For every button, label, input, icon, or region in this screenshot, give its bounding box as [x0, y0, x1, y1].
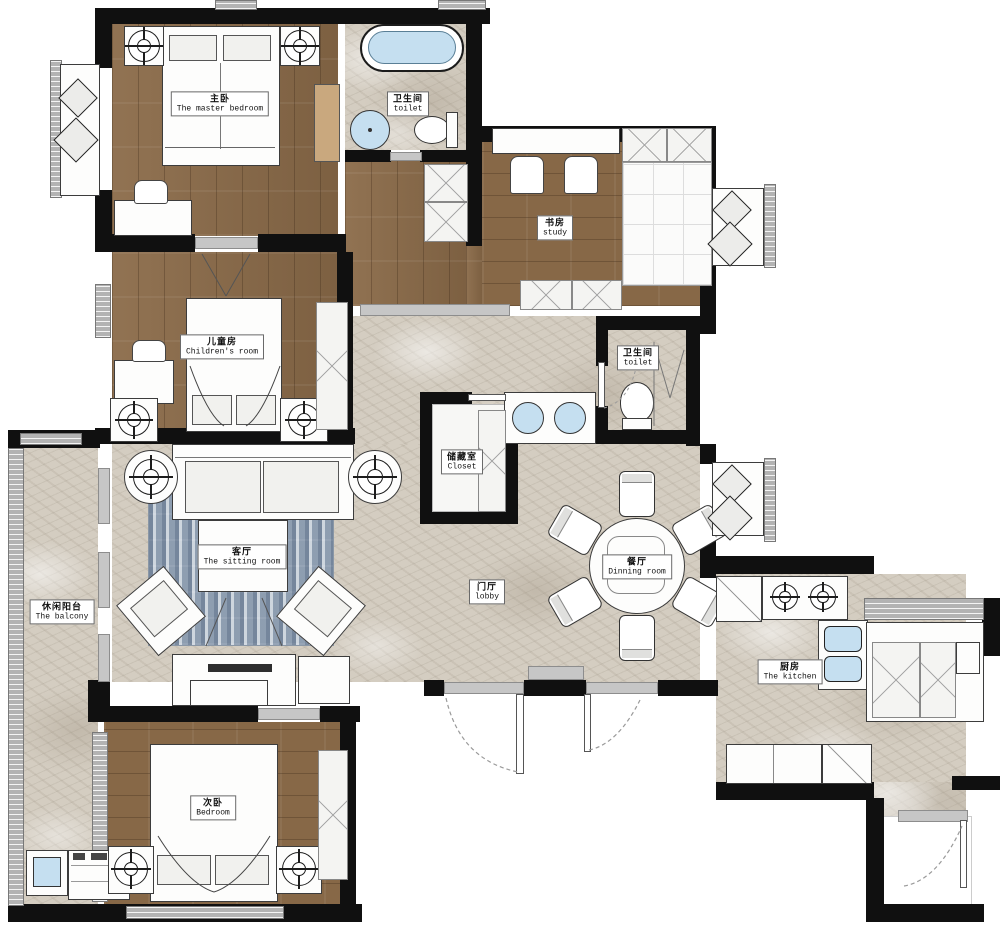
room-label-en: Children's room — [186, 348, 258, 358]
room-label-second-bedroom: 次卧 Bedroom — [190, 795, 236, 820]
door-swing-icon — [589, 700, 640, 750]
room-label-en: toilet — [623, 359, 653, 369]
room-label-zh: 主卧 — [177, 93, 263, 104]
room-label-en: Closet — [447, 463, 477, 473]
downlight-icon — [206, 598, 282, 646]
room-label-zh: 次卧 — [196, 797, 230, 808]
room-label-study: 书房 study — [537, 215, 573, 240]
door-swing-icon — [446, 698, 518, 772]
room-label-zh: 餐厅 — [608, 556, 666, 567]
bed-canopy-lines — [158, 836, 270, 892]
room-label-en: The balcony — [36, 613, 89, 623]
room-label-en: lobby — [475, 593, 499, 603]
room-label-zh: 卫生间 — [393, 93, 423, 104]
room-label-master-bedroom: 主卧 The master bedroom — [171, 91, 269, 116]
room-label-zh: 门厅 — [475, 581, 499, 592]
room-label-kitchen: 厨房 The kitchen — [758, 659, 823, 684]
room-label-en: Dinning room — [608, 568, 666, 578]
room-label-balcony: 休闲阳台 The balcony — [30, 599, 95, 624]
room-label-zh: 书房 — [543, 217, 567, 228]
bed-canopy-lines — [190, 366, 280, 426]
room-label-en: study — [543, 229, 567, 239]
floor-plan: 主卧 The master bedroom 卫生间 toilet 书房 stud… — [0, 0, 1000, 926]
room-label-guest-toilet: 卫生间 toilet — [617, 345, 659, 370]
room-label-en: The master bedroom — [177, 105, 263, 115]
room-label-master-toilet: 卫生间 toilet — [387, 91, 429, 116]
room-label-sitting-room: 客厅 The sitting room — [198, 544, 287, 569]
room-label-en: The sitting room — [204, 558, 281, 568]
room-label-zh: 储藏室 — [447, 451, 477, 462]
annotations-overlay — [0, 0, 1000, 926]
door-swing-icon — [904, 826, 962, 886]
room-label-en: toilet — [393, 105, 423, 115]
room-label-zh: 儿童房 — [186, 336, 258, 347]
room-label-zh: 厨房 — [764, 661, 817, 672]
room-label-children-room: 儿童房 Children's room — [180, 334, 264, 359]
room-label-zh: 休闲阳台 — [36, 601, 89, 612]
downlight-icon — [202, 254, 250, 296]
room-label-en: The kitchen — [764, 673, 817, 683]
door-swing-icon — [604, 368, 636, 408]
room-label-zh: 卫生间 — [623, 347, 653, 358]
room-label-zh: 客厅 — [204, 546, 281, 557]
room-label-lobby: 门厅 lobby — [469, 579, 505, 604]
room-label-closet: 储藏室 Closet — [441, 449, 483, 474]
room-label-en: Bedroom — [196, 809, 230, 819]
room-label-dining-room: 餐厅 Dinning room — [602, 554, 672, 579]
